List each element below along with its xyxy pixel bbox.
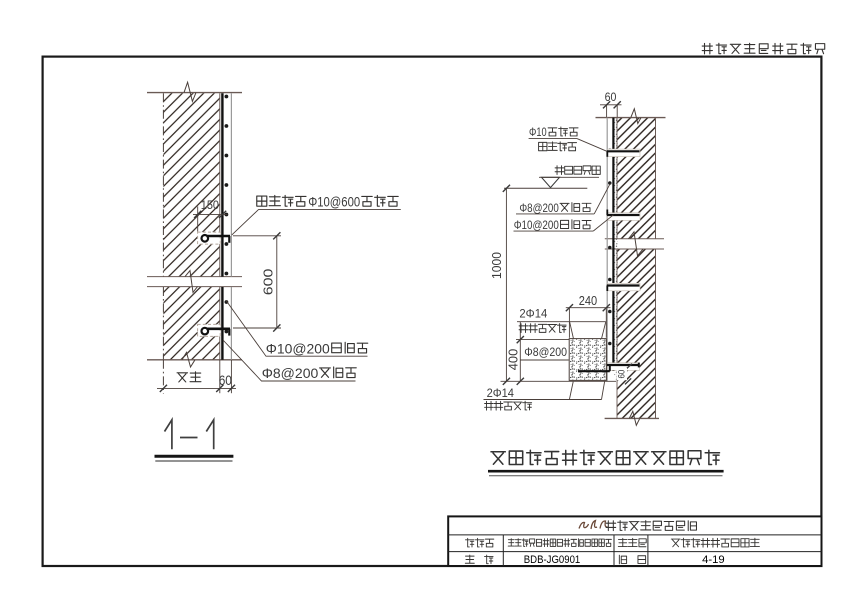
svg-text:600: 600: [260, 269, 275, 296]
svg-text:Φ8@200: Φ8@200: [524, 345, 567, 359]
svg-text:BDB-JG0901: BDB-JG0901: [524, 554, 581, 566]
svg-text:2Φ14: 2Φ14: [519, 306, 547, 320]
svg-text:2Φ14: 2Φ14: [487, 386, 515, 400]
svg-text:400: 400: [507, 349, 521, 371]
svg-text:Φ10: Φ10: [529, 127, 547, 139]
svg-text:4-19: 4-19: [702, 554, 725, 566]
svg-text:150: 150: [201, 198, 219, 212]
svg-text:60: 60: [219, 372, 232, 388]
svg-text:Φ10@200: Φ10@200: [266, 340, 330, 356]
svg-text:1000: 1000: [490, 252, 504, 279]
svg-text:Φ10@600: Φ10@600: [308, 194, 360, 209]
svg-text:Φ8@200: Φ8@200: [262, 365, 319, 381]
svg-text:60: 60: [605, 90, 617, 104]
svg-text:240: 240: [579, 294, 597, 308]
svg-text:Φ8@200: Φ8@200: [519, 201, 559, 215]
svg-text:Φ10@200: Φ10@200: [514, 218, 559, 232]
svg-text:60: 60: [617, 370, 628, 379]
